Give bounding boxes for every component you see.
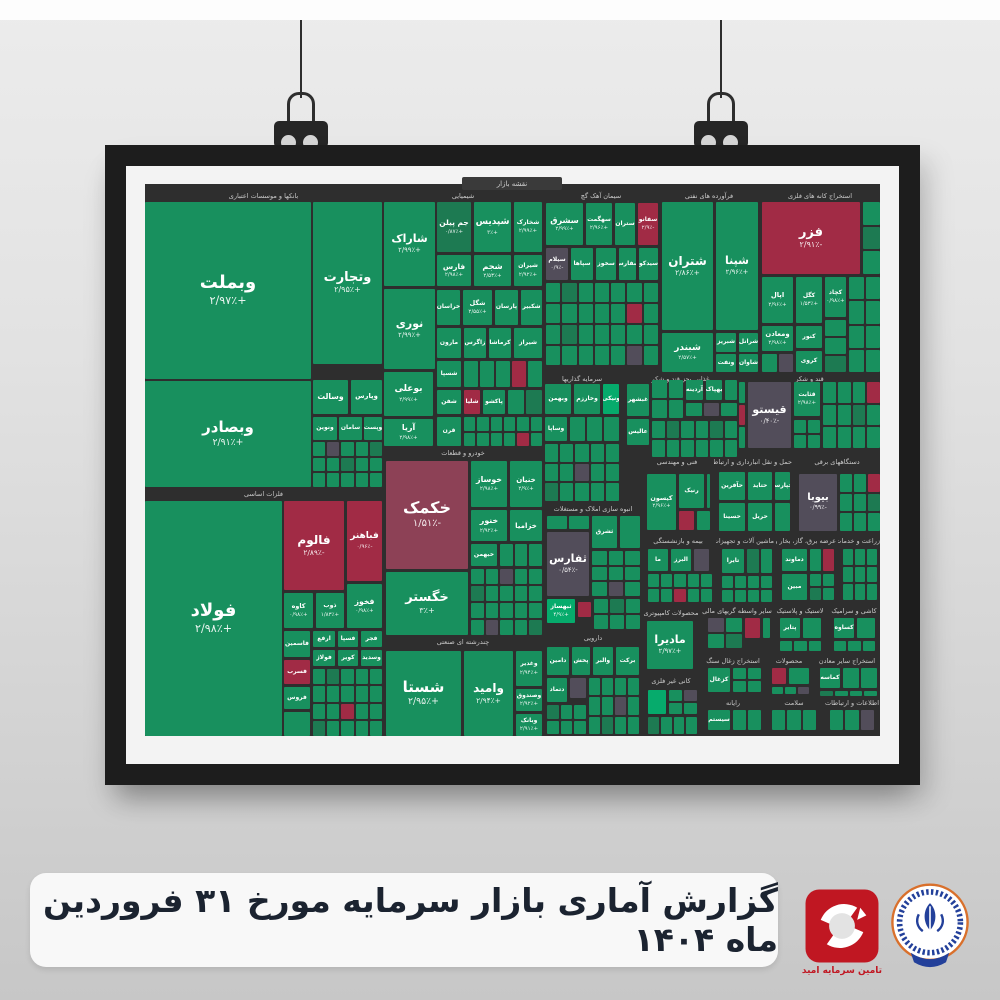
treemap-tile: مبین: [782, 574, 807, 600]
treemap-tile-small: [688, 574, 699, 587]
treemap-tile: سیستم: [708, 710, 730, 730]
treemap-tile-small: [823, 427, 836, 448]
treemap-tile: شگل+۲/۵۵٪: [463, 290, 492, 325]
treemap-tile-small: [761, 576, 772, 588]
tile-change: +۲/۹۲٪: [480, 528, 498, 534]
tile-ticker: دتماد: [550, 687, 565, 693]
treemap-tile: خگستر+۳٪: [386, 572, 468, 635]
treemap-tile-small: [327, 442, 339, 456]
tile-change: +۲/۹۸٪: [768, 340, 786, 346]
treemap-tile-small: [803, 710, 816, 730]
treemap-tile-small: [823, 574, 834, 586]
tile-ticker: شخارک: [517, 220, 540, 226]
treemap-tile-small: [739, 382, 745, 403]
treemap-tile-small: [327, 704, 339, 719]
treemap-tile-small: [591, 483, 604, 501]
caption-banner: گزارش آماری بازار سرمایه مورخ ۳۱ فروردین…: [30, 873, 778, 967]
treemap-tile-small: [529, 603, 542, 618]
treemap-tile-small: [620, 516, 640, 548]
treemap-tile-small: [627, 304, 641, 323]
treemap-tile: برکت: [616, 647, 639, 675]
treemap-tile-small: [500, 586, 513, 601]
tile-ticker: کماسه: [820, 675, 839, 681]
tile-ticker: شجم: [482, 262, 502, 271]
treemap-tile: فزر-۲/۹۱٪: [762, 202, 860, 274]
tile-ticker: وپارس: [355, 393, 378, 400]
tile-change: +۰/۹۸٪: [355, 608, 373, 614]
tile-ticker: فسپا: [341, 636, 356, 642]
treemap-tile-small: [515, 603, 528, 618]
treemap-tile-small: [667, 421, 680, 438]
tile-ticker: کگل: [803, 293, 815, 299]
tile-change: +۲/۹۱٪: [213, 438, 244, 448]
tile-ticker: شبریز: [717, 339, 735, 345]
treemap-tile-small: [611, 346, 625, 365]
treemap-tile-small: [684, 690, 697, 701]
treemap-tile-small: [628, 717, 639, 734]
treemap-tile-small: [341, 458, 353, 472]
tile-ticker: ثبهساز: [551, 604, 572, 610]
treemap-tile: خکمک-۱/۵۱٪: [386, 461, 468, 569]
treemap-tile-small: [609, 551, 624, 565]
tile-ticker: حتاید: [753, 483, 768, 489]
tile-ticker: شیراز: [519, 340, 537, 346]
treemap-tile-small: [652, 421, 665, 438]
treemap-tile-small: [853, 382, 866, 403]
treemap-tile-small: [648, 717, 659, 734]
treemap-tile-small: [515, 586, 528, 601]
treemap-tile: شستا+۲/۹۵٪: [386, 651, 461, 736]
treemap-tile-small: [748, 590, 759, 602]
treemap-tile: فالوم-۲/۸۹٪: [284, 501, 344, 590]
sector-header: لاستیک و پلاستیک: [774, 606, 826, 616]
treemap-tile: دامین: [547, 647, 569, 675]
tile-change: -۱/۵۱٪: [413, 519, 441, 530]
treemap-tile-small: [726, 618, 742, 632]
treemap-tile-small: [825, 338, 846, 354]
treemap-tile-small: [500, 620, 513, 635]
treemap-tile-small: [594, 599, 608, 613]
treemap-tile: سیلام-۰/۹٪: [546, 248, 568, 280]
treemap-tile-small: [595, 325, 609, 344]
treemap-tile: ثفارس-۰/۵۴٪: [547, 532, 589, 596]
treemap-tile-small: [562, 304, 576, 323]
treemap-tile-small: [471, 620, 484, 635]
treemap-tile-small: [341, 721, 353, 736]
treemap-tile: کیسون+۲/۹۶٪: [647, 474, 676, 530]
tile-ticker: کزغال: [710, 677, 729, 683]
treemap-tile-small: [681, 440, 694, 457]
treemap-tile-small: [810, 549, 821, 571]
treemap-tile: آریا+۲/۹۸٪: [384, 419, 433, 446]
treemap-tile-small: [602, 717, 613, 734]
treemap-tile-small: [529, 544, 542, 566]
tile-ticker: فارس: [443, 263, 465, 271]
tile-change: +۲/۹۷٪: [659, 648, 682, 655]
tile-change: -۰/۹۹٪: [809, 505, 827, 512]
tile-ticker: شلیا: [465, 399, 478, 405]
tile-ticker: سخوز: [597, 261, 614, 267]
treemap-tile: وسالت: [313, 380, 348, 414]
treemap-tile-small: [628, 697, 639, 714]
treemap-tile-small: [547, 721, 559, 735]
treemap-tile-small: [843, 549, 853, 565]
treemap-tile: شیران+۲/۹۲٪: [514, 255, 542, 286]
treemap-tile-small: [341, 704, 353, 719]
treemap-tile-small: [681, 421, 694, 438]
treemap-tile-small: [594, 615, 608, 629]
tile-change: +۲/۹۸٪: [445, 272, 463, 278]
tile-change: -۲/۹٪: [642, 225, 655, 231]
treemap-tile-small: [739, 427, 745, 448]
treemap-tile-small: [803, 618, 821, 638]
treemap-tile-small: [591, 444, 604, 462]
tile-ticker: ما: [655, 557, 661, 563]
treemap-tile-small: [810, 574, 821, 586]
treemap-tile-small: [733, 681, 746, 692]
tile-ticker: خگستر: [405, 591, 449, 605]
tile-change: +۲/۹۷٪: [209, 295, 246, 307]
treemap-tile-small: [674, 574, 685, 587]
treemap-tile: کویر: [338, 650, 358, 666]
treemap-tile-small: [648, 589, 659, 602]
treemap-tile-small: [609, 582, 624, 596]
treemap-tile-small: [529, 620, 542, 635]
treemap-tile-small: [686, 403, 702, 416]
treemap-tile-small: [627, 325, 641, 344]
treemap-tile-small: [486, 586, 499, 601]
tile-ticker: بهپاک: [706, 387, 722, 393]
treemap-tile-small: [845, 710, 858, 730]
tile-ticker: سفارس: [619, 261, 636, 267]
treemap-tile: قیستو-۰/۴۰٪: [748, 382, 791, 448]
tile-ticker: سیلام: [548, 257, 565, 263]
tile-ticker: شستا: [403, 680, 445, 696]
treemap-tile: ونوین: [313, 417, 337, 440]
treemap-tile-small: [748, 681, 761, 692]
treemap-tile-small: [625, 567, 640, 581]
treemap-tile-small: [644, 304, 658, 323]
treemap-tile: وبانک+۲/۹۱٪: [516, 714, 542, 736]
treemap-tile: فجر: [361, 631, 382, 647]
treemap-tile: رنیک: [679, 474, 704, 508]
treemap-tile-small: [838, 382, 851, 403]
treemap-tile-small: [674, 717, 685, 734]
omid-logo-caption: تامین سرمایه امید: [792, 966, 892, 976]
treemap-tile-small: [725, 440, 738, 457]
sector-header: سیمان آهک گچ: [544, 191, 658, 201]
tile-change: +۲/۵۷٪: [678, 355, 697, 361]
tile-ticker: شگل: [470, 300, 486, 307]
treemap-tile-small: [562, 346, 576, 365]
treemap-tile: فولاژ: [313, 650, 335, 666]
tile-ticker: ارفع: [317, 636, 331, 642]
tile-ticker: شاوان: [739, 360, 758, 366]
treemap-tile: حپارسا: [775, 472, 790, 500]
treemap-tile-small: [546, 283, 560, 302]
treemap-tile-small: [626, 599, 640, 613]
treemap-tile: سشرق+۲/۹۹٪: [546, 203, 583, 245]
tile-ticker: شسپا: [441, 371, 458, 377]
treemap-tile-small: [853, 405, 866, 426]
treemap-tile: شلیا: [464, 390, 480, 414]
treemap-tile: پاکشو: [483, 390, 505, 414]
treemap-tile-small: [611, 283, 625, 302]
treemap-tile: وساپا: [545, 417, 567, 441]
tile-ticker: ونفت: [718, 360, 735, 366]
treemap-tile-small: [840, 494, 852, 512]
tile-ticker: قرن: [443, 428, 456, 434]
tile-change: +۲/۹۶٪: [726, 269, 749, 276]
treemap-tile-small: [825, 356, 846, 372]
tile-ticker: کویر: [341, 655, 354, 661]
treemap-tile-small: [761, 590, 772, 602]
tile-ticker: وبهمن: [548, 396, 567, 402]
tile-ticker: حپارسا: [775, 483, 790, 489]
treemap-tile-small: [868, 494, 880, 512]
treemap-tile: [772, 668, 786, 684]
treemap-tile-small: [574, 705, 586, 719]
treemap-tile-small: [707, 474, 710, 508]
wall-background: نقشه بازار بانکها و موسسات اعتباریوبملت+…: [0, 0, 1000, 1000]
treemap-tile-small: [327, 721, 339, 736]
tile-ticker: ونوین: [316, 425, 333, 431]
treemap-tile-small: [561, 705, 573, 719]
treemap-tile-small: [843, 668, 859, 688]
sector-header: دارویی: [544, 633, 642, 643]
tile-ticker: خوساز: [476, 476, 502, 484]
treemap-tile: ومعادن+۲/۹۸٪: [762, 326, 793, 351]
tile-ticker: سپاها: [574, 261, 591, 267]
sector-header: انبوه سازی املاک و مستغلات: [544, 504, 642, 514]
treemap-tile-small: [591, 464, 604, 482]
treemap-tile-small: [772, 687, 783, 694]
treemap-tile-small: [606, 483, 619, 501]
treemap-tile: شفن: [437, 390, 461, 414]
treemap-tile-small: [602, 678, 613, 695]
tile-change: +۲/۹۶٪: [768, 302, 786, 308]
treemap-tile: شبریز: [716, 333, 736, 352]
treemap-tile-small: [517, 433, 528, 447]
treemap-tile: [570, 678, 586, 698]
treemap-tile-small: [854, 474, 866, 492]
tile-ticker: قثابت: [798, 392, 815, 398]
tile-ticker: کساوه: [834, 625, 853, 631]
treemap-tile-small: [652, 440, 665, 457]
tile-ticker: وپست: [364, 425, 382, 431]
treemap-tile: سپاها: [571, 248, 593, 280]
treemap-tile-small: [644, 325, 658, 344]
treemap-tile-small: [696, 440, 709, 457]
treemap-tile: تایرا: [722, 549, 744, 573]
treemap-tile: ارفع: [313, 631, 335, 647]
treemap-tile-small: [708, 618, 724, 632]
treemap-tile-small: [575, 483, 588, 501]
treemap-tile-small: [843, 584, 853, 600]
treemap-tile: کنور: [796, 326, 822, 348]
treemap-tile-small: [735, 576, 746, 588]
treemap-tile-small: [341, 442, 353, 456]
treemap-tile-small: [748, 576, 759, 588]
sector-header: خودرو و قطعات: [384, 448, 542, 458]
treemap-tile-small: [496, 361, 510, 387]
treemap-tile: کروی: [796, 351, 822, 372]
sector-header: اطلاعات و ارتباطات: [824, 698, 880, 708]
tile-ticker: فجر: [366, 636, 378, 642]
treemap-tile: پخش: [572, 647, 590, 675]
treemap-tile: کچاد+۰/۹۸٪: [825, 277, 846, 317]
sepah-bank-logo-icon: [890, 882, 970, 977]
treemap-tile-small: [854, 513, 866, 531]
treemap-tile: خبهمن: [471, 544, 497, 566]
treemap-tile-small: [546, 304, 560, 323]
treemap-tile: جم پیلن+۰/۸۷٪: [437, 202, 471, 252]
treemap-tile-small: [864, 691, 877, 696]
treemap-tile-small: [854, 494, 866, 512]
treemap-tile: دتماد: [547, 678, 567, 702]
sector-header: سرمایه گذاریها: [542, 374, 622, 384]
treemap-tile-small: [628, 678, 639, 695]
treemap-tile-small: [313, 458, 325, 472]
sector-header: فرآورده های نفتی: [660, 191, 758, 201]
treemap-tile: ستران: [615, 203, 635, 245]
tile-ticker: پخش: [573, 658, 588, 664]
treemap-tile-small: [794, 435, 806, 448]
treemap-tile-small: [686, 717, 697, 734]
treemap-tile: [578, 602, 591, 617]
tile-ticker: وغدیر: [520, 661, 537, 667]
tile-ticker: فزر: [799, 226, 823, 240]
tile-change: +۲/۹۶٪: [590, 225, 608, 231]
tile-change: -۰/۹٪: [551, 265, 564, 271]
treemap-tile-small: [529, 586, 542, 601]
treemap-tile: پارسان: [495, 290, 518, 325]
tile-change: +۲/۹۴٪: [476, 697, 501, 705]
treemap-tile-small: [464, 361, 478, 387]
treemap-tile: شسپا: [437, 361, 461, 387]
tile-ticker: برکت: [620, 658, 636, 664]
treemap-tile: خزامیا: [510, 510, 542, 541]
tile-change: +۲/۵۵٪: [468, 309, 486, 315]
treemap-tile-small: [327, 473, 339, 487]
tile-ticker: مارون: [440, 340, 458, 346]
tile-change: +۲/۹۲٪: [520, 701, 538, 707]
treemap-tile-small: [313, 686, 325, 701]
treemap-tile-small: [574, 721, 586, 735]
treemap-tile-small: [825, 320, 846, 336]
treemap-tile-small: [794, 420, 806, 433]
treemap-tile-small: [579, 325, 593, 344]
treemap-tile-small: [370, 473, 382, 487]
treemap-tile-small: [356, 721, 368, 736]
treemap-tile-small: [626, 615, 640, 629]
treemap-tile: وبهمن: [545, 384, 571, 414]
treemap-tile-small: [863, 641, 875, 651]
treemap-tile-small: [823, 588, 834, 600]
treemap-tile: شرانل: [739, 333, 758, 352]
treemap-tile-small: [327, 686, 339, 701]
tile-change: +۰/۸۷٪: [445, 229, 463, 235]
tile-ticker: بیوبا: [807, 493, 829, 504]
treemap-tile-small: [853, 427, 866, 448]
treemap-tile-small: [708, 634, 724, 648]
treemap-tile-small: [515, 544, 528, 566]
treemap-tile-small: [627, 283, 641, 302]
treemap-tile-small: [500, 569, 513, 584]
treemap-tile-small: [356, 669, 368, 684]
treemap-tile: مادیرا+۲/۹۷٪: [647, 621, 693, 669]
treemap-tile-small: [370, 721, 382, 736]
tile-ticker: نوری: [396, 318, 423, 330]
sector-header: محصولات کامپیوتری: [642, 608, 700, 618]
treemap-tile: شکبیر: [521, 290, 542, 325]
tile-ticker: پاکشو: [485, 399, 503, 405]
tile-ticker: سامان: [341, 425, 360, 431]
treemap-tile-small: [855, 549, 865, 565]
treemap-tile-small: [863, 202, 880, 225]
treemap-tile: نوری+۲/۹۹٪: [384, 289, 435, 369]
treemap-tile-small: [327, 458, 339, 472]
treemap-tile-small: [748, 668, 761, 679]
tile-ticker: بوعلی: [395, 385, 423, 394]
tile-ticker: وامید: [473, 682, 504, 695]
treemap-tile: شخارک+۲/۹۹٪: [514, 202, 542, 252]
treemap-tile: فاسمین: [284, 631, 310, 657]
treemap-tile-small: [855, 567, 865, 583]
treemap-tile-small: [735, 590, 746, 602]
treemap-tile-small: [526, 390, 542, 414]
treemap-tile-small: [867, 549, 877, 565]
tile-ticker: وتجارت: [324, 271, 372, 285]
tile-ticker: مادیرا: [654, 634, 685, 646]
tile-ticker: شیران: [518, 263, 538, 269]
treemap-tile-small: [739, 405, 745, 426]
tile-change: +۲/۹۹٪: [555, 226, 573, 232]
treemap-tile: کگل+۱/۵۳٪: [796, 277, 822, 323]
treemap-tile-small: [615, 717, 626, 734]
treemap-tile-small: [356, 686, 368, 701]
treemap-tile-small: [652, 400, 667, 418]
treemap-tile: سفانو-۲/۹٪: [638, 203, 658, 245]
tile-ticker: حآفرین: [721, 483, 743, 489]
treemap-tile-small: [725, 380, 737, 400]
tile-ticker: سفانو: [639, 217, 658, 223]
treemap-tile-small: [529, 569, 542, 584]
tile-ticker: اپال: [771, 292, 784, 299]
sector-header: عرضه برق، گاز، بخار و آب: [776, 536, 836, 546]
sector-header: کانی غیر فلزی: [642, 676, 700, 686]
treemap-tile: کساوه: [834, 618, 854, 638]
treemap-tile-small: [627, 346, 641, 365]
treemap-tile-small: [471, 569, 484, 584]
treemap-tile: فولاد+۲/۹۸٪: [145, 501, 282, 736]
treemap-tile-small: [866, 277, 881, 299]
treemap-tile-small: [615, 697, 626, 714]
treemap-tile-small: [863, 227, 880, 250]
tile-ticker: فروس: [287, 695, 307, 701]
treemap-tile: کاوه+۰/۹۸٪: [284, 593, 313, 628]
treemap-tile-small: [579, 346, 593, 365]
treemap-tile-small: [504, 417, 515, 431]
treemap-tile-small: [486, 603, 499, 618]
treemap-tile: ثشرق: [592, 516, 617, 548]
treemap-tile-small: [370, 704, 382, 719]
treemap-tile-small: [546, 346, 560, 365]
treemap-tile-small: [867, 382, 880, 403]
tile-ticker: فالوم: [297, 534, 330, 547]
treemap-tile-small: [464, 417, 475, 431]
treemap-tile-small: [780, 641, 792, 651]
